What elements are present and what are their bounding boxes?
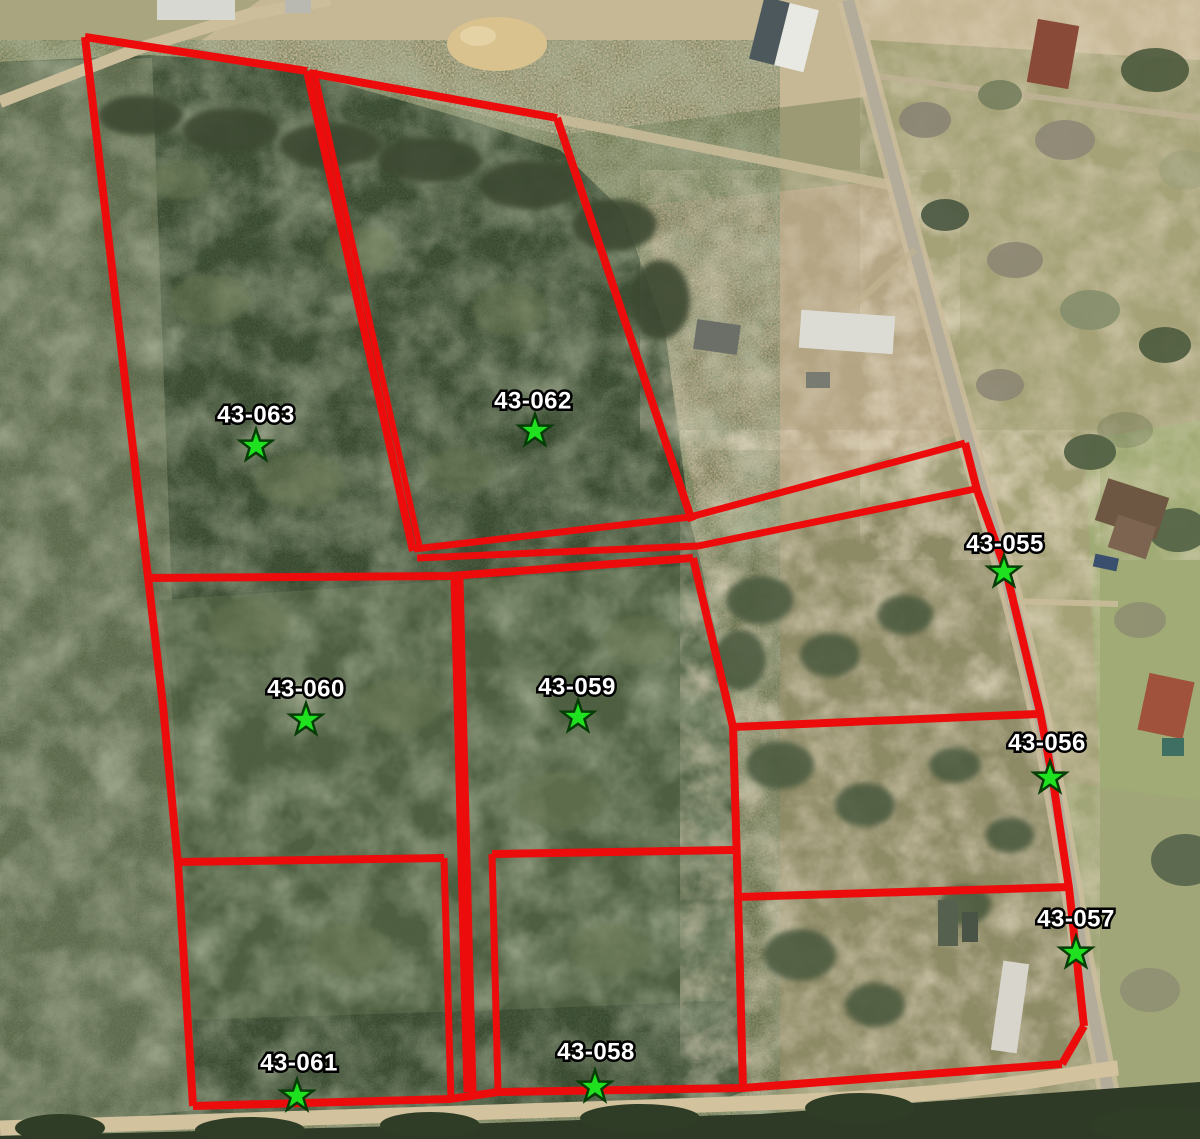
parcel-label-43-062: 43-062 <box>494 387 572 414</box>
parcel-label-43-061: 43-061 <box>260 1049 338 1076</box>
parcel-boundary-top-58 <box>492 850 733 854</box>
parcel-label-43-059: 43-059 <box>538 673 616 700</box>
parcel-label-43-060: 43-060 <box>267 675 345 702</box>
parcel-label-43-057: 43-057 <box>1037 905 1115 932</box>
parcel-label-43-056: 43-056 <box>1008 729 1086 756</box>
parcel-label-43-055: 43-055 <box>966 530 1044 557</box>
map-canvas[interactable]: 43-06343-06243-06043-05943-06143-05843-0… <box>0 0 1200 1139</box>
parcel-boundary-divider-60-61 <box>176 858 444 862</box>
satellite-background <box>0 0 1200 1139</box>
parcel-label-43-058: 43-058 <box>557 1038 635 1065</box>
parcel-label-43-063: 43-063 <box>217 401 295 428</box>
